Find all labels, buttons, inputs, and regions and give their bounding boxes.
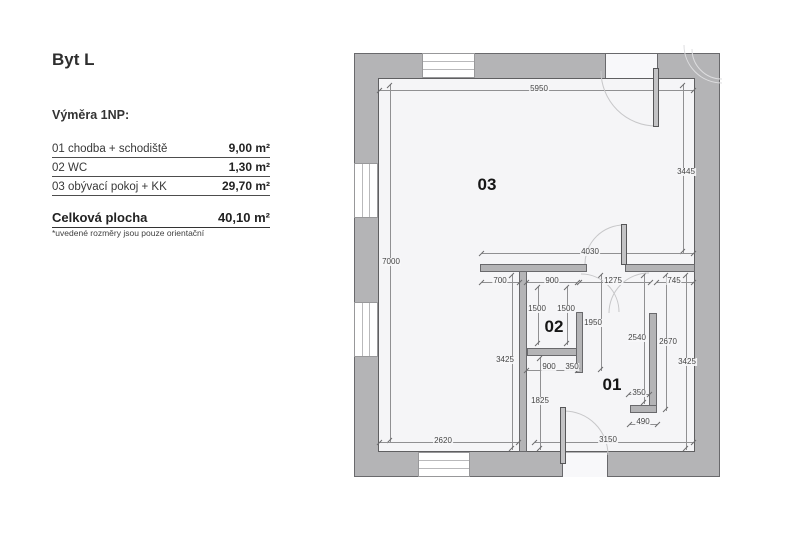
dimension-label: 2670 xyxy=(658,338,678,346)
dimension-label: 900 xyxy=(541,363,556,371)
entry-door-leaf xyxy=(653,68,659,127)
dimension-label: 490 xyxy=(635,418,650,426)
dimension-label: 1950 xyxy=(583,319,603,327)
room-name: 03 obývací pokoj + KK xyxy=(52,181,167,193)
area-section-label: Výměra 1NP: xyxy=(52,108,129,122)
dimension-label: 350 xyxy=(564,363,579,371)
total-label: Celková plocha xyxy=(52,210,147,225)
room-area: 9,00 m² xyxy=(229,141,270,155)
apartment-title: Byt L xyxy=(52,50,95,70)
total-area: 40,10 m² xyxy=(218,210,270,225)
room-label-hallway: 01 xyxy=(603,375,622,395)
living-room-door-leaf xyxy=(621,224,627,265)
window-left-lower xyxy=(354,302,378,357)
dimension-label: 1500 xyxy=(527,305,547,313)
legend-row-wc: 02 WC 1,30 m² xyxy=(52,160,270,177)
window-left-upper xyxy=(354,163,378,218)
dimension-label: 1500 xyxy=(556,305,576,313)
dimension-line xyxy=(567,286,568,345)
dimension-line xyxy=(538,286,539,345)
dimension-label: 900 xyxy=(544,277,559,285)
stair-wall-vertical xyxy=(649,313,657,413)
room-area: 1,30 m² xyxy=(229,160,270,174)
window-top xyxy=(422,53,475,78)
dimension-label: 5950 xyxy=(529,85,549,93)
partition-hall-left xyxy=(480,264,587,272)
dimension-label: 3150 xyxy=(598,436,618,444)
legend-total-row: Celková plocha 40,10 m² xyxy=(52,210,270,228)
dimension-label: 4030 xyxy=(580,248,600,256)
floor-plan-sheet: Byt L Výměra 1NP: 01 chodba + schodiště … xyxy=(0,0,800,534)
stair-wall-foot xyxy=(630,405,657,413)
partition-vertical-main xyxy=(519,271,527,452)
window-bottom xyxy=(418,452,470,477)
dimension-label: 745 xyxy=(666,277,681,285)
room-area: 29,70 m² xyxy=(222,179,270,193)
bottom-door-leaf xyxy=(560,407,566,464)
door-opening-bottom xyxy=(562,453,608,477)
room-name: 02 WC xyxy=(52,162,87,174)
wc-bottom-wall xyxy=(527,348,583,356)
dimension-label: 700 xyxy=(492,277,507,285)
dimension-label: 3425 xyxy=(677,358,697,366)
dimension-label: 2620 xyxy=(433,437,453,445)
room-name: 01 chodba + schodiště xyxy=(52,143,167,155)
dimension-label: 7000 xyxy=(381,258,401,266)
dimension-label: 1275 xyxy=(603,277,623,285)
partition-hall-right xyxy=(625,264,695,272)
room-label-living-room: 03 xyxy=(478,175,497,195)
dimension-label: 3425 xyxy=(495,356,515,364)
dimension-label: 3445 xyxy=(676,168,696,176)
legend-row-obyvaci-pokoj: 03 obývací pokoj + KK 29,70 m² xyxy=(52,179,270,196)
entry-door-opening-top xyxy=(605,54,658,78)
room-label-wc: 02 xyxy=(545,317,564,337)
legend-row-chodba: 01 chodba + schodiště 9,00 m² xyxy=(52,141,270,158)
disclaimer-footnote: *uvedené rozměry jsou pouze orientační xyxy=(52,228,204,238)
dimension-label: 1825 xyxy=(530,397,550,405)
dimension-label: 2540 xyxy=(627,334,647,342)
dimension-label: 350 xyxy=(631,389,646,397)
